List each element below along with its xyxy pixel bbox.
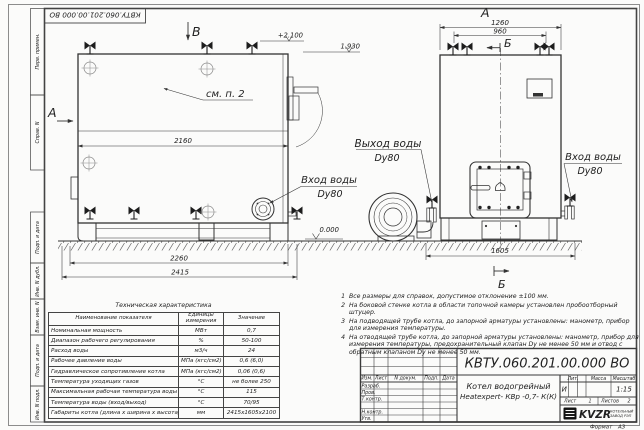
col-izm: Изм.	[361, 376, 372, 382]
logo-subtext1: КОТЕЛЬНЫЙ	[610, 409, 634, 414]
margin-label: Взам. инв. N	[35, 301, 41, 333]
sheet-value: 1	[588, 399, 591, 405]
tech-cell: не более 250	[224, 377, 280, 387]
note-text: На отводящей трубе котла, до запорной ар…	[349, 334, 640, 357]
tech-cell: мм	[179, 408, 224, 418]
margin-label: Подп. и дата	[35, 344, 41, 377]
drawing-sheet: Перв. примен. Справ. N Подп. и дата Инв.…	[0, 0, 644, 430]
tech-cell: 70/95	[224, 397, 280, 407]
top-stamp-number: КВТУ.060.201.00.000 ВО	[49, 11, 140, 20]
callout-texts: см. п. 2 Выход воды Dy80 Вход воды Dy80 …	[206, 89, 621, 200]
table-row: Рабочее давление водыМПа (кгс/см2)0,6 (6…	[49, 356, 280, 366]
inlet-flange	[252, 198, 274, 220]
side-bracket	[71, 177, 78, 199]
tech-cell: 2415х1605х2100	[224, 408, 280, 418]
water-inlet-front-dn: Dy80	[577, 166, 602, 177]
drain-valve-icon	[292, 207, 303, 220]
row-tkontr: Т.контр.	[362, 396, 383, 402]
drawing-notes: 1Все размеры для справок, допустимое отк…	[337, 293, 640, 358]
safety-valve-icon	[462, 43, 473, 56]
note-item: 2На боковой стенке котла в области топоч…	[337, 302, 640, 317]
tech-cell: 115	[224, 387, 280, 397]
table-row: Максимальная рабочая температура воды°С1…	[49, 387, 280, 397]
front-leg	[78, 223, 96, 241]
water-outlet-dn: Dy80	[374, 153, 399, 164]
view-label-v: В	[192, 24, 201, 39]
tech-cell: МВт	[179, 325, 224, 335]
view-label-a-front: А	[480, 5, 490, 20]
water-inlet-front-label: Вход воды	[565, 152, 621, 163]
row-prov: Пров.	[362, 390, 376, 396]
note-item: 3На подводящей трубе котла, до запорной …	[337, 318, 640, 333]
tech-cell: Температура уходящих газов	[49, 377, 179, 387]
door-bolts	[478, 166, 519, 209]
lit-header: Лит.	[566, 376, 578, 382]
blower-fan	[369, 193, 433, 241]
dim-1605: 1605	[491, 247, 509, 255]
row-nkontr: Н.контр.	[362, 409, 383, 415]
elev-top: +2.100	[278, 32, 303, 40]
litera-value: И	[562, 386, 568, 394]
drain-valve-icon	[85, 207, 96, 220]
elev-mid: 1.930	[341, 43, 360, 51]
scale-value: 1:15	[616, 386, 632, 394]
inlet-assembly	[561, 206, 574, 219]
tech-cell: Гидравлическое сопротивление котла	[49, 367, 179, 377]
base-frame	[441, 218, 557, 240]
note-item: 4На отводящей трубе котла, до запорной а…	[337, 334, 640, 357]
tech-cell: °С	[179, 397, 224, 407]
note-number: 1	[337, 293, 345, 301]
col-dokum: N докум.	[394, 376, 416, 382]
product-name-line1: Котел водогрейный	[467, 382, 551, 391]
section-label-b-bottom: Б	[498, 278, 506, 291]
center-mark-icon	[200, 204, 217, 221]
dim-2415: 2415	[171, 269, 189, 277]
company-logo: KVZR КОТЕЛЬНЫЙ ЗАВОД РЭП	[564, 408, 634, 422]
drain-valve-icon	[191, 207, 202, 220]
view-label-a-side: А	[47, 105, 57, 120]
drain-valve-icon	[129, 207, 140, 220]
tech-cell: %	[179, 336, 224, 346]
mass-header: Масса	[591, 376, 606, 382]
safety-valve-icon	[85, 42, 96, 55]
center-mark-icon	[199, 61, 216, 78]
tech-header: Значение	[224, 313, 280, 326]
row-razrab: Разраб.	[362, 383, 381, 389]
table-row: Гидравлическое сопротивление котлаМПа (к…	[49, 367, 280, 377]
safety-valve-icon	[247, 42, 258, 55]
col-podp: Подп.	[424, 376, 439, 382]
format-label: Формат	[590, 425, 613, 430]
tech-cell: Номинальная мощность	[49, 325, 179, 335]
water-inlet-side-label: Вход воды	[301, 175, 357, 186]
row-utv: Утв.	[362, 416, 372, 422]
table-row: Температура воды (вход/выход)°С70/95	[49, 397, 280, 407]
col-data: Дата	[441, 376, 454, 382]
tech-cell: Рабочее давление воды	[49, 356, 179, 366]
inlet-valve-icon	[565, 194, 576, 207]
dim-960: 960	[493, 28, 507, 36]
scale-header: Масштаб	[613, 376, 636, 382]
dim-2160: 2160	[174, 137, 192, 145]
tech-cell: °С	[179, 377, 224, 387]
tech-cell: МПа (кгс/см2)	[179, 367, 224, 377]
tech-cell: °С	[179, 387, 224, 397]
elevation-texts: +2.100 1.930 0.000	[278, 32, 360, 235]
mid-support	[199, 223, 214, 240]
format-value: А3	[617, 425, 626, 430]
table-row: Номинальная мощностьМВт0,7	[49, 325, 280, 335]
tech-header: Наименование показателя	[49, 313, 179, 326]
note-text: На боковой стенке котла в области топочн…	[349, 302, 640, 317]
tech-cell: 0,06 (0,6)	[224, 367, 280, 377]
note-number: 3	[337, 318, 345, 333]
tech-cell: Расход воды	[49, 346, 179, 356]
table-row: Диапазон рабочего регулирования%50-100	[49, 336, 280, 346]
tech-cell: Диапазон рабочего регулирования	[49, 336, 179, 346]
sheet-label: Лист	[563, 399, 576, 405]
tech-header: Единицы измерения	[179, 313, 224, 326]
boiler-front-view	[369, 48, 574, 252]
safety-valve-icon	[544, 43, 555, 56]
note-text: Все размеры для справок, допустимое откл…	[349, 293, 549, 301]
note-item: 1Все размеры для справок, допустимое отк…	[337, 293, 640, 301]
tech-cell: 0,7	[224, 325, 280, 335]
tech-cell: Максимальная рабочая температура воды	[49, 387, 179, 397]
see-note-callout: см. п. 2	[206, 89, 245, 100]
water-inlet-side-dn: Dy80	[317, 189, 342, 200]
tech-table-title: Техническая характеристика	[48, 302, 279, 309]
tech-cell: 50-100	[224, 336, 280, 346]
tech-characteristics: Техническая характеристика Наименование …	[48, 302, 279, 419]
note-number: 2	[337, 302, 345, 317]
margin-label: Инв. N подл.	[35, 388, 41, 420]
doc-number: КВТУ.060.201.00.000 ВО	[465, 357, 630, 372]
col-list: Лист	[374, 376, 387, 382]
safety-valve-icon	[202, 42, 213, 55]
tech-cell: Габариты котла (длина х ширина х высота)	[49, 408, 179, 418]
sheets-value: 2	[627, 399, 630, 405]
dim-1260: 1260	[491, 19, 509, 27]
logo-subtext2: ЗАВОД РЭП	[610, 414, 632, 418]
water-outlet-label: Выход воды	[355, 138, 422, 150]
outlet-assembly	[427, 208, 436, 222]
door-handle	[471, 186, 490, 191]
center-mark-icon	[82, 60, 99, 77]
section-label-b-top: Б	[504, 37, 512, 50]
tech-cell: 24	[224, 346, 280, 356]
note-text: На подводящей трубе котла, до запорной а…	[349, 318, 640, 333]
logo-text: KVZR	[579, 409, 611, 421]
elevation-marks	[260, 36, 360, 240]
safety-valve-icon	[448, 43, 459, 56]
tech-table: Наименование показателя Единицы измерени…	[48, 312, 280, 419]
table-row: Расход водым3/ч24	[49, 346, 280, 356]
tech-cell: 0,6 (6,0)	[224, 356, 280, 366]
margin-labels: Перв. примен. Справ. N Подп. и дата Инв.…	[35, 33, 41, 419]
tech-cell: Температура воды (вход/выход)	[49, 397, 179, 407]
margin-label: Подп. и дата	[35, 221, 41, 254]
center-mark-icon	[81, 155, 98, 172]
table-row: Температура уходящих газов°Сне более 250	[49, 377, 280, 387]
table-row: Габариты котла (длина х ширина х высота)…	[49, 408, 280, 418]
sheets-label: Листов	[600, 399, 619, 405]
margin-label: Перв. примен.	[35, 33, 41, 69]
flue-outlet	[287, 77, 322, 147]
tech-cell: м3/ч	[179, 346, 224, 356]
rear-leg	[270, 223, 288, 241]
product-name-line2: Heatexpert- КВр -0,7- К(К)	[460, 392, 557, 401]
dim-2260: 2260	[170, 255, 188, 263]
margin-label: Инв. N дубл.	[35, 265, 41, 296]
elev-zero: 0.000	[320, 226, 339, 234]
margin-label: Справ. N	[35, 121, 41, 143]
tech-cell: МПа (кгс/см2)	[179, 356, 224, 366]
note-number: 4	[337, 334, 345, 357]
boiler-side-view	[71, 54, 322, 241]
